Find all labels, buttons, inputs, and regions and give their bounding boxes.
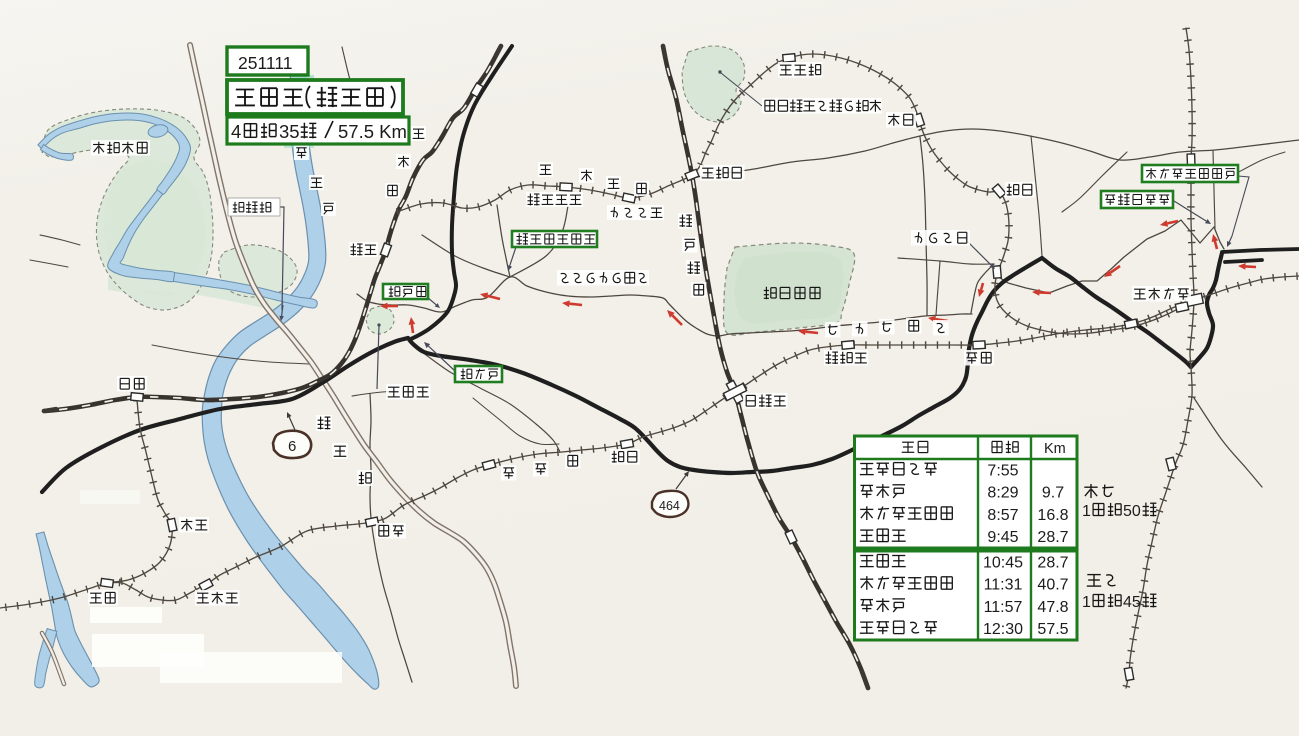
svg-text:251111: 251111: [238, 53, 293, 73]
svg-text:47.8: 47.8: [1037, 599, 1068, 616]
svg-text:9.7: 9.7: [1042, 485, 1064, 502]
svg-text:1: 1: [1082, 594, 1091, 611]
svg-text:10:45: 10:45: [983, 555, 1023, 572]
svg-text:57.5: 57.5: [1037, 621, 1068, 638]
svg-text:Km: Km: [1044, 441, 1066, 457]
svg-text:8:29: 8:29: [987, 485, 1018, 502]
svg-text:45: 45: [1123, 594, 1141, 611]
svg-text:12:30: 12:30: [983, 621, 1023, 638]
svg-text:9:45: 9:45: [987, 529, 1018, 546]
svg-text:57.5 Km: 57.5 Km: [338, 121, 407, 142]
svg-text:50: 50: [1123, 503, 1141, 520]
svg-text:1: 1: [1082, 503, 1091, 520]
svg-text:28.7: 28.7: [1037, 529, 1068, 546]
svg-text:8:57: 8:57: [987, 507, 1018, 524]
svg-text:464: 464: [659, 499, 680, 513]
svg-text:40.7: 40.7: [1037, 577, 1068, 594]
svg-text:16.8: 16.8: [1037, 507, 1068, 524]
svg-text:28.7: 28.7: [1037, 555, 1068, 572]
svg-text:11:31: 11:31: [984, 577, 1023, 594]
svg-text:35: 35: [279, 121, 300, 142]
svg-text:11:57: 11:57: [984, 599, 1023, 616]
svg-text:6: 6: [288, 438, 296, 455]
svg-text:7:55: 7:55: [987, 463, 1018, 480]
svg-text:4: 4: [231, 121, 241, 142]
